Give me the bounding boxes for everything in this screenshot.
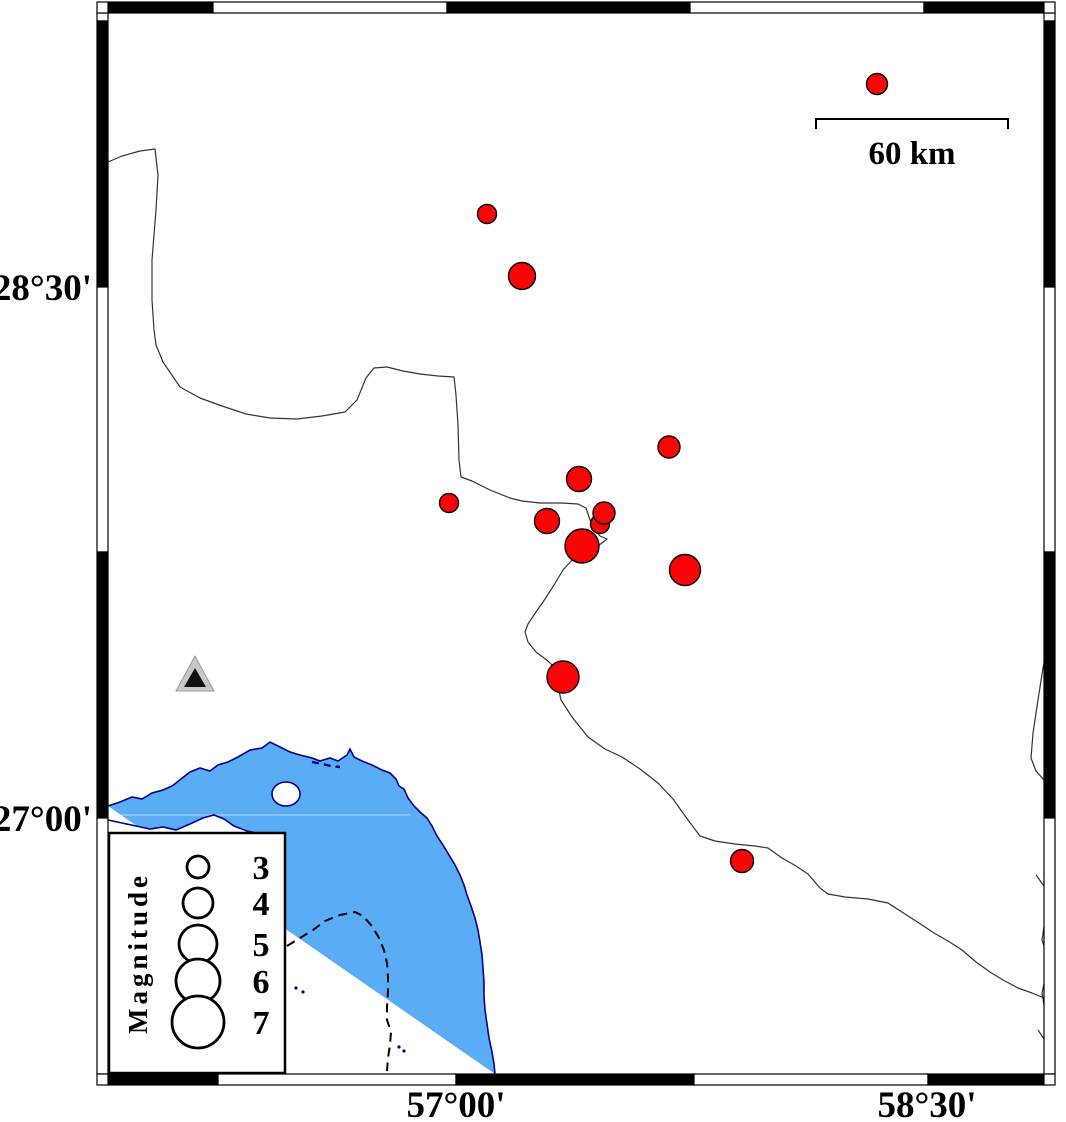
legend-magnitude-label: 4 bbox=[253, 886, 270, 923]
frame-segment-top bbox=[924, 2, 1044, 13]
frame-segment-top bbox=[108, 2, 213, 13]
frame-segment-bottom bbox=[218, 1074, 456, 1085]
islet bbox=[294, 986, 297, 989]
longitude-label: 57°00' bbox=[406, 1085, 505, 1122]
seismicity-map-figure: 60 kmMagnitude3456728°30'27°00'57°00'58°… bbox=[0, 0, 1066, 1122]
frame-segment-bottom bbox=[456, 1074, 694, 1085]
earthquake-marker bbox=[731, 850, 754, 873]
frame-segment-left bbox=[97, 287, 108, 552]
frame-segment-left bbox=[97, 552, 108, 818]
frame-corner-cell bbox=[97, 1074, 108, 1085]
legend-magnitude-label: 3 bbox=[253, 850, 270, 887]
islet bbox=[301, 990, 304, 993]
earthquake-marker bbox=[565, 529, 599, 563]
latitude-label: 27°00' bbox=[0, 799, 92, 840]
islet bbox=[397, 1045, 400, 1048]
island bbox=[272, 782, 300, 806]
longitude-label: 58°30' bbox=[877, 1085, 976, 1122]
earthquake-marker bbox=[478, 205, 497, 224]
earthquake-marker bbox=[867, 74, 888, 95]
earthquake-marker bbox=[547, 661, 579, 693]
earthquake-marker bbox=[440, 494, 459, 513]
frame-segment-left bbox=[97, 21, 108, 287]
islet bbox=[402, 1049, 405, 1052]
frame-segment-bottom bbox=[694, 1074, 928, 1085]
legend-magnitude-label: 7 bbox=[253, 1005, 270, 1042]
earthquake-marker bbox=[593, 502, 615, 524]
frame-segment-right bbox=[1044, 552, 1055, 818]
frame-corner-cell bbox=[1044, 1074, 1055, 1085]
frame-segment-right bbox=[1044, 13, 1055, 21]
frame-segment-top bbox=[447, 2, 690, 13]
frame-segment-left bbox=[97, 13, 108, 21]
frame-segment-left bbox=[97, 818, 108, 1074]
frame-segment-top bbox=[213, 2, 447, 13]
scale-bar-label: 60 km bbox=[868, 136, 955, 172]
frame-corner-cell bbox=[1044, 2, 1055, 13]
legend-title: Magnitude bbox=[123, 872, 153, 1034]
frame-segment-right bbox=[1044, 287, 1055, 552]
legend-magnitude-circle bbox=[187, 856, 209, 878]
earthquake-marker bbox=[658, 436, 680, 458]
legend-magnitude-circle bbox=[172, 996, 224, 1048]
legend-magnitude-circle bbox=[183, 888, 213, 918]
frame-segment-top bbox=[690, 2, 924, 13]
map-canvas: 60 kmMagnitude3456728°30'27°00'57°00'58°… bbox=[0, 0, 1066, 1122]
frame-segment-bottom bbox=[108, 1074, 218, 1085]
frame-corner-cell bbox=[97, 2, 108, 13]
legend-magnitude-label: 6 bbox=[253, 964, 270, 1001]
earthquake-marker bbox=[670, 555, 701, 586]
legend-magnitude-circle bbox=[179, 925, 217, 963]
frame-segment-right bbox=[1044, 21, 1055, 287]
earthquake-marker bbox=[567, 467, 592, 492]
earthquake-marker bbox=[509, 263, 536, 290]
frame-segment-right bbox=[1044, 818, 1055, 1074]
frame-segment-bottom bbox=[928, 1074, 1044, 1085]
legend-magnitude-label: 5 bbox=[253, 927, 270, 964]
earthquake-marker bbox=[535, 509, 560, 534]
latitude-label: 28°30' bbox=[0, 268, 92, 309]
